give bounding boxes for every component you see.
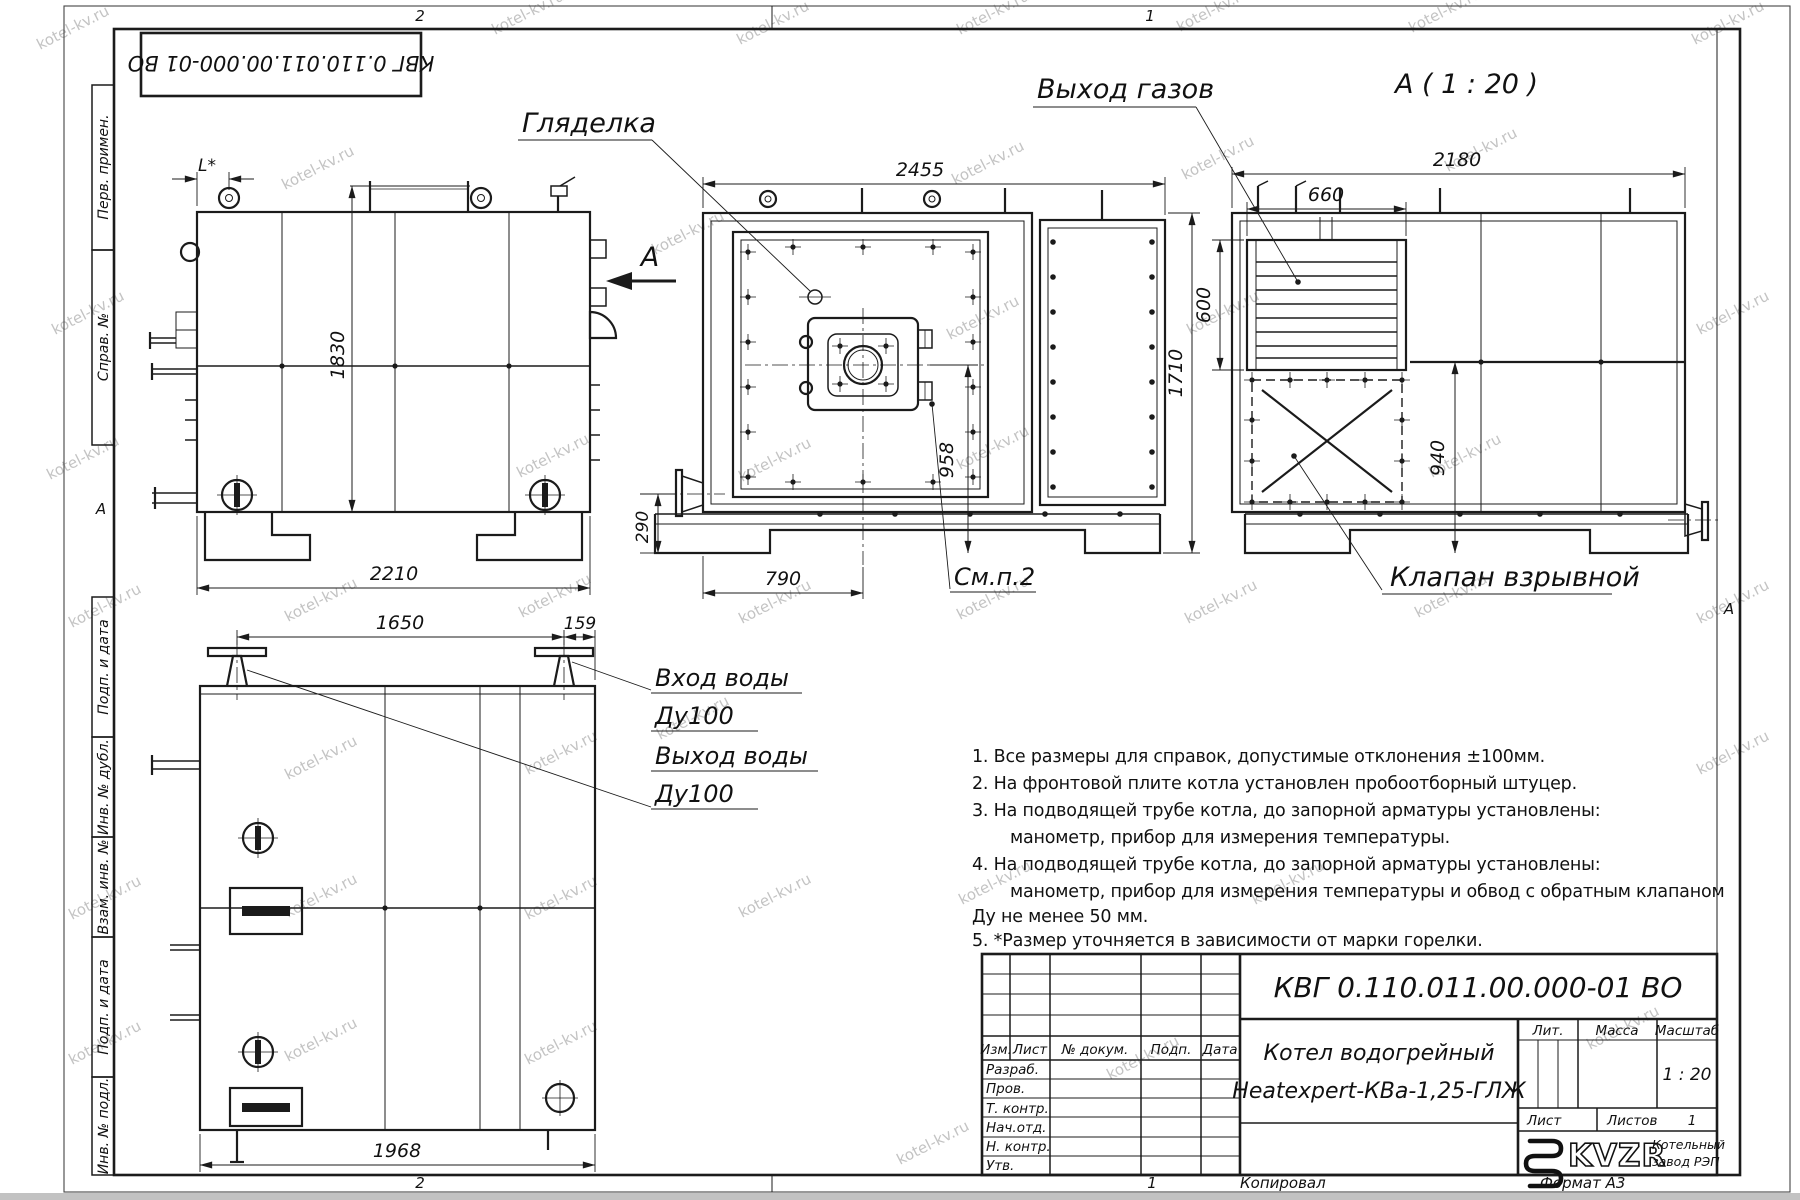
sidebar-label: Подп. и дата — [96, 959, 112, 1054]
explosion-valve-panel — [1244, 372, 1410, 510]
tb-scale-value: 1 : 20 — [1663, 1065, 1712, 1085]
svg-text:Клапан взрывной: Клапан взрывной — [1390, 562, 1640, 593]
front-base — [655, 511, 1160, 553]
dim-2210: 2210 — [197, 516, 590, 595]
tb-sheets-label: Листов — [1606, 1113, 1657, 1129]
door-hinges — [590, 240, 616, 460]
svg-text:Ду100: Ду100 — [654, 702, 734, 730]
note-line: манометр, прибор для измерения температу… — [1010, 828, 1450, 848]
note-line: 5. *Размер уточняется в зависимости от м… — [972, 931, 1483, 951]
tb-row-label: Пров. — [986, 1081, 1025, 1097]
drawing-sheet: kotel-kv.ru kotel-kv.ru kotel-kv.ru kote… — [0, 0, 1800, 1200]
zone-letter-right: А — [1723, 600, 1734, 618]
sidebar-label: Подп. и дата — [96, 619, 112, 714]
watermark: kotel-kv.ru — [736, 870, 814, 922]
svg-text:1710: 1710 — [1165, 349, 1187, 397]
drawing-canvas: kotel-kv.ru kotel-kv.ru kotel-kv.ru kote… — [0, 0, 1800, 1200]
dim-660: 660 — [1247, 184, 1406, 236]
watermark: kotel-kv.ru — [49, 287, 127, 339]
watermark: kotel-kv.ru — [282, 574, 360, 626]
svg-text:2180: 2180 — [1433, 149, 1481, 171]
watermark: kotel-kv.ru — [954, 422, 1032, 474]
doc-number-box: КВГ 0.110.011.00.000-01 ВО — [128, 33, 435, 96]
svg-text:Выход воды: Выход воды — [655, 742, 808, 770]
svg-text:660: 660 — [1308, 184, 1344, 206]
watermark: kotel-kv.ru — [522, 727, 600, 779]
svg-text:1968: 1968 — [373, 1140, 421, 1162]
margin-stamps: Перв. примен. Справ. № Подп. и дата Инв.… — [92, 85, 114, 1175]
side-fittings — [150, 243, 199, 509]
dim-790: 790 — [703, 556, 863, 599]
svg-text:290: 290 — [633, 511, 653, 543]
rear-base — [1245, 511, 1688, 553]
note-line: Ду не менее 50 мм. — [972, 907, 1148, 927]
zone-number: 1 — [1145, 7, 1155, 25]
copied-label: Копировал — [1240, 1174, 1326, 1192]
rear-stub — [1668, 502, 1722, 540]
view-front: 2455 1710 958 290 790 Гляделка — [518, 108, 1200, 599]
title-block: Изм. Лист № докум. Подп. Дата Разраб. Пр… — [980, 954, 1725, 1186]
note-line: 3. На подводящей трубе котла, до запорно… — [972, 801, 1600, 821]
watermark: kotel-kv.ru — [1182, 576, 1260, 628]
page-edge-shadow — [0, 1193, 1800, 1200]
air-valve — [551, 177, 575, 212]
tb-row-label: Н. контр. — [986, 1139, 1051, 1155]
watermark: kotel-kv.ru — [34, 2, 112, 54]
svg-text:940: 940 — [1427, 440, 1449, 476]
watermark: kotel-kv.ru — [894, 1117, 972, 1169]
watermark: kotel-kv.ru — [279, 142, 357, 194]
burner-plate — [800, 318, 932, 410]
zone-number: 2 — [415, 7, 425, 25]
watermark: kotel-kv.ru — [44, 432, 122, 484]
company-line2: завод РЭП — [1652, 1154, 1720, 1169]
svg-text:1650: 1650 — [376, 612, 424, 634]
zone-letter-left: А — [95, 500, 106, 518]
svg-text:См.п.2: См.п.2 — [954, 563, 1035, 591]
note-line: 4. На подводящей трубе котла, до запорно… — [972, 855, 1600, 875]
svg-text:Вход воды: Вход воды — [655, 664, 789, 692]
tb-row-label: Утв. — [986, 1158, 1014, 1174]
svg-text:А: А — [639, 242, 659, 273]
tb-row-label: Т. контр. — [986, 1101, 1049, 1117]
note-line: 2. На фронтовой плите котла установлен п… — [972, 774, 1577, 794]
drain-fittings — [217, 475, 565, 515]
tb-header-data: Дата — [1202, 1042, 1238, 1058]
format-label: Формат А3 — [1540, 1174, 1625, 1192]
tb-header-podp: Подп. — [1151, 1042, 1192, 1058]
svg-text:600: 600 — [1193, 287, 1215, 323]
tb-doc-number: КВГ 0.110.011.00.000-01 ВО — [1274, 971, 1683, 1004]
svg-text:Выход газов: Выход газов — [1037, 74, 1214, 105]
watermark: kotel-kv.ru — [282, 870, 360, 922]
sidebar-label: Взам. инв. № — [96, 839, 112, 934]
svg-text:790: 790 — [765, 568, 801, 590]
watermark: kotel-kv.ru — [734, 0, 812, 49]
tb-product-2: Heatexpert-КВа-1,25-ГЛЖ — [1232, 1079, 1527, 1104]
tb-lit-label: Лит. — [1531, 1023, 1563, 1039]
tb-scale-label: Масштаб — [1655, 1023, 1719, 1039]
svg-text:L*: L* — [198, 156, 216, 176]
lifting-lug — [219, 188, 491, 208]
svg-text:1830: 1830 — [327, 331, 349, 379]
dim-1968: 1968 — [200, 1134, 595, 1172]
svg-text:2210: 2210 — [370, 563, 418, 585]
water-nozzle-outlet — [208, 640, 266, 700]
water-nozzle-inlet — [535, 640, 593, 700]
svg-text:958: 958 — [936, 442, 958, 478]
sidebar-label: Инв. № подл. — [96, 1078, 112, 1175]
zone-number: 1 — [1147, 1174, 1157, 1192]
view-title: А ( 1 : 20 ) — [1393, 69, 1538, 100]
label-sight-glass: Гляделка — [518, 108, 810, 291]
dim-2180: 2180 — [1232, 149, 1685, 208]
watermark: kotel-kv.ru — [949, 137, 1027, 189]
tb-header-list: Лист — [1012, 1042, 1048, 1058]
front-rear-panel — [1040, 190, 1165, 505]
tb-header-izm: Изм. — [980, 1042, 1012, 1058]
svg-text:Ду100: Ду100 — [654, 780, 734, 808]
watermark: kotel-kv.ru — [1179, 132, 1257, 184]
watermark: kotel-kv.ru — [649, 207, 727, 259]
doc-box-number: КВГ 0.110.011.00.000-01 ВО — [128, 51, 435, 75]
support-foot — [477, 512, 582, 560]
tb-row-label: Разраб. — [986, 1062, 1039, 1078]
watermark: kotel-kv.ru — [1689, 0, 1767, 49]
dim-l-star: L* — [172, 156, 254, 206]
watermark: kotel-kv.ru — [522, 1017, 600, 1069]
svg-text:Гляделка: Гляделка — [522, 108, 656, 139]
watermark: kotel-kv.ru — [522, 872, 600, 924]
watermark: kotel-kv.ru — [282, 732, 360, 784]
sidebar-label: Перв. примен. — [96, 114, 112, 219]
dim-1830: 1830 — [327, 186, 470, 512]
notes-block: 1. Все размеры для справок, допустимые о… — [972, 747, 1724, 951]
zone-number: 2 — [415, 1174, 425, 1192]
view-rear: 2180 660 600 940 Выход газов А ( 1 : 20 … — [1033, 69, 1722, 594]
watermark: kotel-kv.ru — [514, 430, 592, 482]
watermark: kotel-kv.ru — [1694, 287, 1772, 339]
label-gas-outlet: Выход газов — [1033, 74, 1301, 285]
tb-sheets-value: 1 — [1688, 1113, 1697, 1129]
sidebar-label: Инв. № дубл. — [96, 739, 112, 835]
view-side: L* 1830 2210 А — [150, 156, 676, 595]
svg-text:2455: 2455 — [896, 159, 944, 181]
tb-mass-label: Масса — [1595, 1023, 1638, 1039]
support-foot — [205, 512, 310, 560]
top-fittings — [152, 755, 578, 1162]
note-line: 1. Все размеры для справок, допустимые о… — [972, 747, 1545, 767]
front-drain-stub — [660, 470, 725, 516]
watermark: kotel-kv.ru — [1694, 727, 1772, 779]
tb-header-doc: № докум. — [1061, 1042, 1129, 1058]
dim-1710: 1710 — [1163, 213, 1200, 553]
tb-row-label: Нач.отд. — [986, 1120, 1046, 1136]
tb-sheet-label: Лист — [1526, 1113, 1562, 1129]
watermark: kotel-kv.ru — [944, 292, 1022, 344]
label-water-inlet: Вход воды Ду100 — [572, 662, 802, 731]
note-line: манометр, прибор для измерения температу… — [1010, 882, 1724, 902]
watermark: kotel-kv.ru — [282, 1014, 360, 1066]
svg-text:159: 159 — [564, 614, 596, 634]
tb-product-1: Котел водогрейный — [1264, 1041, 1495, 1066]
gas-outlet-grille — [1247, 217, 1406, 370]
sidebar-label: Справ. № — [96, 313, 112, 381]
company-line1: Котельный — [1652, 1137, 1725, 1152]
